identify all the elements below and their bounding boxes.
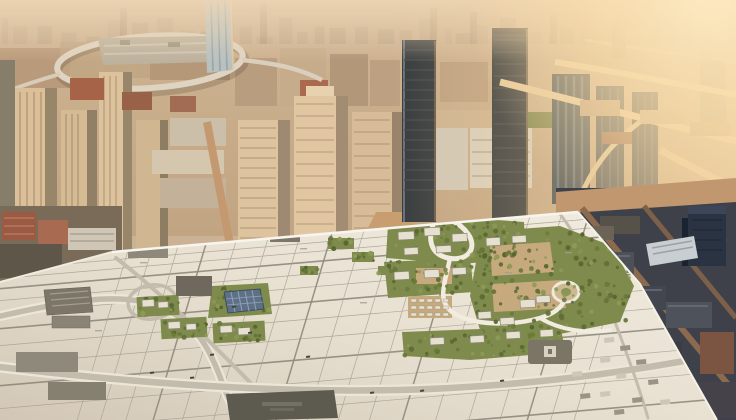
tree-dot [532,319,536,323]
tree-dot [218,297,220,299]
mini-block [600,391,610,397]
brick-block [700,332,734,374]
tree-dot [472,225,476,229]
tree-dot [559,314,564,319]
mini-block [660,399,670,405]
tree-dot [470,253,475,258]
tree-dot [505,252,509,256]
tree-dot [425,354,428,357]
tree-dot [573,285,577,289]
tree-dot [489,249,493,253]
tree-dot [429,334,432,337]
tree-dot [338,237,342,241]
building-footprint [424,227,440,236]
tree-dot [608,293,613,298]
tree-dot [327,241,332,246]
parked-car [443,299,449,302]
tree-dot [433,236,437,240]
tree-dot [532,260,535,263]
tree-dot [418,339,423,344]
tree-dot [443,268,447,272]
tree-dot [484,268,486,270]
tree-dot [304,269,309,274]
tree-dot [487,259,491,263]
tree-dot [262,309,265,312]
tree-dot [594,284,599,289]
tree-dot [373,259,375,261]
map-label-smudge [565,252,572,253]
tree-dot [477,235,482,240]
tree-dot [577,310,582,315]
tree-dot [434,349,439,354]
tree-dot [554,261,557,264]
parked-car [411,313,417,316]
tree-dot [198,329,201,332]
building-footprint [168,321,180,329]
tree-dot [504,242,507,245]
tree-dot [393,287,396,290]
tree-dot [578,302,583,307]
tree-dot [494,258,497,261]
tree-dot [579,261,584,266]
tree-dot [212,300,216,304]
tree-dot [139,307,142,310]
tree-dot [623,318,628,323]
tree-dot [595,246,600,251]
tree-dot [528,336,531,339]
map-label-smudge [300,248,307,249]
tree-dot [219,306,223,310]
tree-dot [499,352,504,357]
tree-dot [554,287,558,291]
tree-dot [522,350,524,352]
tree-dot [536,249,538,251]
tree-dot [203,324,205,326]
tree-dot [627,295,631,299]
tree-dot [574,256,579,261]
mini-block [620,345,630,351]
tree-dot [516,286,520,290]
tree-dot [499,262,503,266]
tree-dot [590,322,594,326]
tree-dot [581,324,586,329]
tree-dot [484,289,489,294]
building-footprint [394,271,409,280]
tree-dot [507,264,512,269]
building-footprint [452,267,466,275]
mini-block [614,409,624,415]
map-label-smudge [360,302,367,303]
tree-dot [572,243,577,248]
parked-car [443,313,449,316]
tree-dot [535,289,540,294]
building-footprint [540,329,553,337]
tree-dot [343,240,348,245]
tree-dot [493,251,496,254]
tree-dot [549,272,554,277]
tree-dot [544,256,547,259]
tree-dot [490,282,494,286]
tree-dot [415,229,420,234]
tree-dot [424,337,426,339]
mini-block [604,337,614,343]
tree-dot [450,291,454,295]
tree-dot [544,302,548,306]
tree-dot [253,325,257,329]
tree-dot [606,291,609,294]
tree-dot [566,245,571,250]
tree-dot [496,328,499,331]
tree-dot [486,221,489,224]
tree-dot [331,246,336,251]
tree-dot [568,292,570,294]
tree-dot [481,330,483,332]
tree-dot [254,334,258,338]
building-footprint [452,233,467,242]
tree-dot [504,282,507,285]
tree-dot [581,315,584,318]
tree-dot [393,266,398,271]
tree-dot [501,230,505,234]
tree-dot [467,257,470,260]
tree-dot [234,335,239,340]
tree-dot [493,229,498,234]
tree-dot [537,305,540,308]
mini-block [648,379,658,385]
mini-block [636,359,646,365]
tree-dot [477,285,479,287]
tree-dot [474,302,477,305]
tree-dot [225,334,228,337]
tree-dot [580,249,582,251]
tree-dot [310,271,314,275]
tree-dot [583,290,585,292]
tree-dot [434,286,438,290]
tree-dot [450,339,454,343]
building-footprint [436,245,451,253]
building-footprint [220,325,232,333]
tree-dot [217,321,222,326]
parked-car [419,306,425,309]
tree-dot [467,267,472,272]
tree-dot [628,276,631,279]
mini-block [616,373,626,379]
tree-dot [315,267,319,271]
building-footprint [158,301,168,308]
tree-dot [215,308,218,311]
map-label-smudge [505,272,512,273]
white-row-building [68,228,116,250]
tree-dot [503,236,506,239]
tree-dot [552,304,555,307]
building-footprint [398,231,414,240]
tree-dot [578,239,581,242]
tree-dot [621,302,625,306]
footprint-block [16,352,78,372]
tree-dot [480,352,484,356]
parked-car [411,299,417,302]
mini-block [632,397,642,403]
tree-dot [166,297,170,301]
tree-dot [389,269,393,273]
tree-dot [308,270,311,273]
tree-dot [477,251,481,255]
tree-dot [589,310,593,314]
tree-dot [191,335,194,338]
tree-dot [617,301,621,305]
tree-dot [589,238,593,242]
tree-dot [483,232,488,237]
parked-car [435,306,441,309]
tree-dot [482,254,487,259]
tree-dot [392,280,395,283]
mini-block [600,357,610,363]
tree-dot [475,281,477,283]
tree-dot [436,277,441,282]
tree-dot [539,324,544,329]
tree-dot [193,332,195,334]
tree-dot [559,310,563,314]
tree-dot [544,264,549,269]
tree-dot [427,263,429,265]
tree-dot [572,294,574,296]
tree-dot [483,304,486,307]
tree-dot [480,294,485,299]
tree-dot [182,335,187,340]
tree-dot [479,255,482,258]
tree-dot [527,249,531,253]
footprint-block [52,316,90,328]
tree-dot [613,285,616,288]
tree-dot [545,311,550,316]
tree-dot [621,298,624,301]
mini-block [580,393,590,399]
tree-dot [388,267,391,270]
tree-dot [513,223,515,225]
tree-dot [520,345,525,350]
scene-canvas [0,0,736,420]
building-footprint [424,269,439,278]
tree-dot [172,333,176,337]
tree-dot [405,287,410,292]
tree-dot [170,304,172,306]
building-footprint [506,331,520,339]
tree-dot [244,336,249,341]
building-footprint [486,237,500,246]
tree-dot [512,245,515,248]
tree-dot [567,231,572,236]
tree-dot [328,236,333,241]
tree-dot [412,279,417,284]
tree-dot [471,352,475,356]
building-footprint [404,247,418,255]
tree-dot [437,283,442,288]
tree-dot [512,252,516,256]
tree-dot [494,320,498,324]
tree-dot [353,254,357,258]
tree-dot [491,344,493,346]
tree-dot [258,334,261,337]
tree-dot [409,346,414,351]
tree-dot [506,232,509,235]
tree-dot [492,289,497,294]
tree-dot [256,338,260,342]
red-building [38,220,68,244]
building-footprint [478,311,491,319]
tree-dot [557,331,561,335]
tree-dot [559,268,563,272]
tree-dot [459,281,463,285]
tree-dot [510,312,514,316]
tree-dot [418,270,421,273]
tree-dot [445,285,448,288]
parked-car [435,299,441,302]
tree-dot [407,344,410,347]
map-label-smudge [140,262,147,263]
tree-dot [440,273,444,277]
tree-dot [536,269,541,274]
tree-dot [454,285,459,290]
tree-dot [163,320,167,324]
building-footprint [470,335,484,343]
tree-dot [579,285,584,290]
tree-dot [520,295,522,297]
tree-dot [613,295,617,299]
illegible-text-smudge [262,402,302,406]
parked-car [411,306,417,309]
tree-dot [529,261,531,263]
tree-dot [376,271,381,276]
tree-dot [499,302,502,305]
building-footprint [142,299,154,307]
illegible-text-smudge [270,408,294,411]
building-footprint [500,317,514,325]
tree-dot [475,237,477,239]
tree-dot [481,285,486,290]
tree-dot [178,336,181,339]
tree-dot [177,301,180,304]
emblem-block [528,340,572,364]
footprint-block [176,276,212,296]
tree-dot [219,337,222,340]
tree-dot [360,256,362,258]
tree-dot [440,237,442,239]
tree-dot [482,227,485,230]
tree-dot [579,290,583,294]
parked-car [435,313,441,316]
tree-dot [426,287,430,291]
tree-dot [514,290,517,293]
tree-dot [248,338,252,342]
tree-dot [503,350,506,353]
tree-dot [463,333,467,337]
tree-dot [562,298,567,303]
tree-dot [487,340,491,344]
tree-dot [604,298,609,303]
tree-dot [541,290,546,295]
tree-dot [503,225,506,228]
parked-car [443,306,449,309]
tree-dot [418,289,423,294]
tree-dot [558,241,562,245]
building-footprint [186,323,196,330]
tree-dot [170,309,173,312]
tree-dot [266,307,271,312]
parked-car [419,313,425,316]
tree-dot [529,266,534,271]
tree-dot [510,278,515,283]
tree-dot [348,239,353,244]
tree-dot [571,301,574,304]
solar-panel-block [224,289,264,313]
tree-dot [446,226,450,230]
tree-dot [443,233,445,235]
tree-dot [589,261,593,265]
tree-dot [507,344,510,347]
tree-dot [545,231,549,235]
tree-dot [530,325,535,330]
parked-car [419,299,425,302]
tree-dot [482,272,486,276]
tree-dot [494,276,498,280]
tree-dot [403,353,408,358]
parked-car [427,313,433,316]
tree-dot [489,270,491,272]
tree-dot [518,295,521,298]
parked-car [427,306,433,309]
tree-dot [580,232,584,236]
tree-dot [493,354,495,356]
tree-dot [584,257,588,261]
building-footprint [520,299,535,308]
tree-dot [434,264,437,267]
tree-dot [455,225,458,228]
aerial-city-masterplan-image [0,0,736,420]
tree-dot [524,258,526,260]
tree-dot [224,285,226,287]
tree-dot [551,267,554,270]
tree-dot [566,281,570,285]
footprint-block [48,382,106,400]
tree-dot [454,265,456,267]
building-footprint [430,337,444,345]
tree-dot [604,282,609,287]
tree-dot [444,238,449,243]
tree-dot [495,335,500,340]
tree-dot [394,244,397,247]
tree-dot [562,292,567,297]
building-footprint [512,235,526,243]
tree-dot [565,324,568,327]
tree-dot [492,223,497,228]
tree-dot [587,279,591,283]
tree-dot [140,311,145,316]
tree-dot [390,260,392,262]
parked-car [427,299,433,302]
tree-dot [486,225,489,228]
tree-dot [546,239,548,241]
tree-dot [616,266,619,269]
tree-dot [512,353,514,355]
title-block [226,390,338,420]
tree-dot [587,283,590,286]
tree-dot [597,292,601,296]
map-label-smudge [95,330,102,331]
tree-dot [456,348,460,352]
tree-dot [368,251,373,256]
tree-dot [485,264,489,268]
tree-dot [397,260,401,264]
